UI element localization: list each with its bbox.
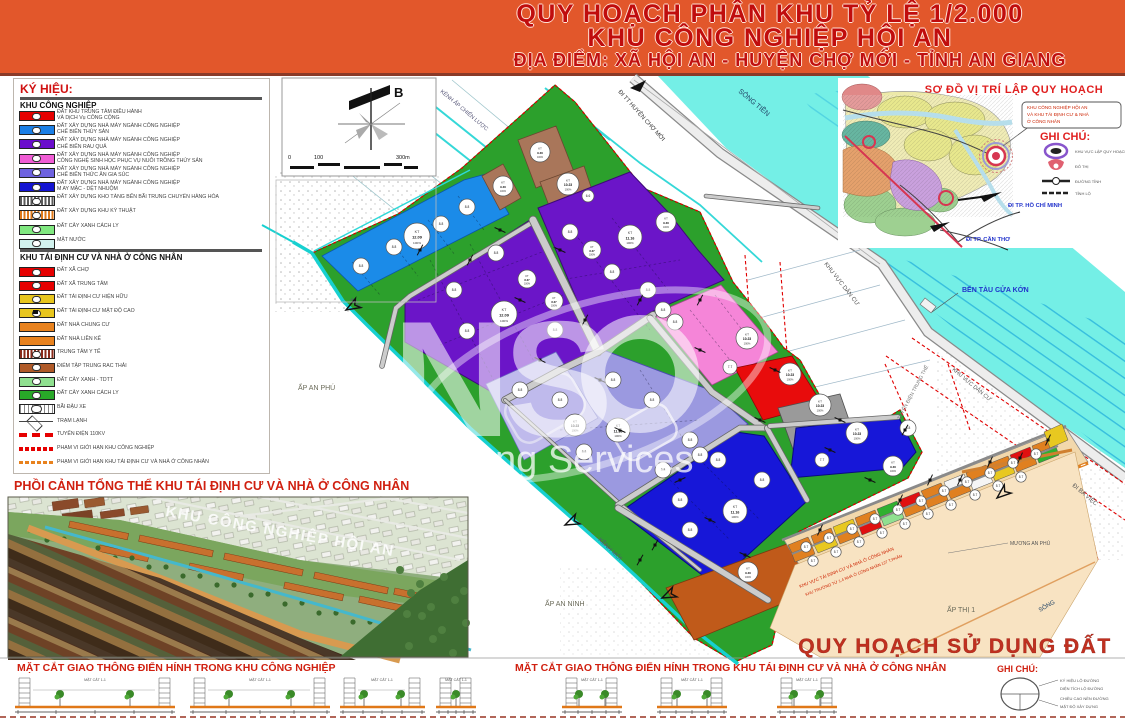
svg-text:ĐI TP. HỒ CHÍ MINH: ĐI TP. HỒ CHÍ MINH xyxy=(1008,201,1062,209)
svg-text:10.23: 10.23 xyxy=(743,337,751,341)
svg-text:100%: 100% xyxy=(500,190,507,193)
svg-text:KT: KT xyxy=(891,461,895,465)
svg-text:100%: 100% xyxy=(537,156,544,159)
svg-text:100%: 100% xyxy=(787,378,794,382)
svg-text:CHIỀU CAO NỀN ĐƯỜNG: CHIỀU CAO NỀN ĐƯỜNG xyxy=(1060,696,1109,701)
svg-text:7.7: 7.7 xyxy=(820,458,825,462)
svg-text:8.8: 8.8 xyxy=(392,245,397,249)
svg-text:8.8: 8.8 xyxy=(494,251,499,255)
svg-text:5.7: 5.7 xyxy=(942,489,947,493)
svg-text:KHU VỰC LẬP QUY HOẠCH: KHU VỰC LẬP QUY HOẠCH xyxy=(1075,149,1125,154)
svg-text:KT: KT xyxy=(745,332,749,336)
svg-text:100%: 100% xyxy=(413,241,421,245)
svg-text:8.37: 8.37 xyxy=(589,249,595,253)
svg-text:KT: KT xyxy=(788,368,792,372)
svg-text:SƠ ĐỒ VỊ TRÍ LẬP QUY HOẠCH: SƠ ĐỒ VỊ TRÍ LẬP QUY HOẠCH xyxy=(925,83,1103,96)
svg-text:8.8: 8.8 xyxy=(760,478,765,482)
svg-text:100%: 100% xyxy=(890,470,897,473)
svg-text:5.7: 5.7 xyxy=(1011,461,1016,465)
svg-text:KT: KT xyxy=(501,181,505,185)
svg-text:MẶT CẮT 1-1: MẶT CẮT 1-1 xyxy=(796,677,818,682)
svg-text:KT: KT xyxy=(628,231,632,235)
svg-text:12.09: 12.09 xyxy=(412,235,423,240)
svg-text:KT: KT xyxy=(733,505,737,509)
svg-text:VÀ KHU TÁI ĐỊNH CƯ & NHÀ: VÀ KHU TÁI ĐỊNH CƯ & NHÀ xyxy=(1027,111,1090,117)
svg-text:8.8: 8.8 xyxy=(673,320,678,324)
svg-text:11.16: 11.16 xyxy=(731,510,740,514)
svg-text:MẶT CẮT 1-1: MẶT CẮT 1-1 xyxy=(445,677,467,682)
svg-text:ĐÔ THỊ: ĐÔ THỊ xyxy=(1075,164,1088,169)
svg-text:8.8: 8.8 xyxy=(688,528,693,532)
svg-text:5.7: 5.7 xyxy=(857,540,862,544)
svg-text:10.23: 10.23 xyxy=(816,404,824,408)
svg-text:9.30: 9.30 xyxy=(537,151,543,155)
svg-text:10.23: 10.23 xyxy=(564,183,572,187)
svg-text:MẶT CẮT 1-1: MẶT CẮT 1-1 xyxy=(371,677,393,682)
svg-text:5.7: 5.7 xyxy=(996,484,1001,488)
svg-text:5.7: 5.7 xyxy=(949,503,954,507)
svg-text:MẶT ĐỘ XÂY DỰNG: MẶT ĐỘ XÂY DỰNG xyxy=(1060,704,1098,709)
svg-text:5.7: 5.7 xyxy=(1034,452,1039,456)
svg-text:300m: 300m xyxy=(396,155,410,161)
svg-text:5.7: 5.7 xyxy=(965,480,970,484)
svg-text:KÝ HIỆU LỘ ĐƯỜNG: KÝ HIỆU LỘ ĐƯỜNG xyxy=(1060,678,1099,683)
svg-text:100%: 100% xyxy=(589,253,596,256)
svg-text:0: 0 xyxy=(288,155,291,161)
svg-text:MẶT CẮT GIAO THÔNG ĐIỂN HÍNH T: MẶT CẮT GIAO THÔNG ĐIỂN HÍNH TRONG KHU C… xyxy=(17,661,336,674)
svg-text:ẤP AN PHÚ: ẤP AN PHÚ xyxy=(298,382,335,392)
svg-text:8.8: 8.8 xyxy=(661,308,666,312)
svg-text:8.8: 8.8 xyxy=(650,398,655,402)
svg-text:5.7: 5.7 xyxy=(827,536,832,540)
svg-text:B: B xyxy=(394,85,403,100)
svg-text:8.8: 8.8 xyxy=(716,458,721,462)
svg-text:9.30: 9.30 xyxy=(890,465,896,469)
svg-text:5.7: 5.7 xyxy=(1019,475,1024,479)
svg-text:GHI CHÚ:: GHI CHÚ: xyxy=(997,663,1038,674)
svg-text:MẶT CẮT 1-1: MẶT CẮT 1-1 xyxy=(249,677,271,682)
svg-text:KÊNH ẤP CHIẾN LƯỢC: KÊNH ẤP CHIẾN LƯỢC xyxy=(439,87,491,132)
svg-text:8.8: 8.8 xyxy=(439,222,444,226)
svg-text:100%: 100% xyxy=(744,342,751,346)
svg-text:Ở CÔNG NHÂN: Ở CÔNG NHÂN xyxy=(1027,118,1060,124)
svg-text:100%: 100% xyxy=(663,226,670,229)
svg-text:8.8: 8.8 xyxy=(698,453,703,457)
svg-text:5.7: 5.7 xyxy=(973,493,978,497)
svg-text:5.7: 5.7 xyxy=(873,517,878,521)
svg-text:5.7: 5.7 xyxy=(988,471,993,475)
svg-text:8.8: 8.8 xyxy=(610,270,615,274)
svg-text:KT: KT xyxy=(590,245,594,249)
svg-text:5.7: 5.7 xyxy=(919,499,924,503)
svg-text:TUYẾN ĐIỆN TRUNG THẾ: TUYẾN ĐIỆN TRUNG THẾ xyxy=(895,363,931,421)
svg-text:9.30: 9.30 xyxy=(500,185,506,189)
svg-text:5.7: 5.7 xyxy=(926,512,931,516)
svg-text:MẶT CẮT 1-1: MẶT CẮT 1-1 xyxy=(84,677,106,682)
svg-text:8.8: 8.8 xyxy=(568,230,573,234)
svg-text:11.16: 11.16 xyxy=(626,236,635,240)
svg-text:100%: 100% xyxy=(745,576,752,579)
svg-text:100%: 100% xyxy=(817,409,824,413)
svg-text:KT: KT xyxy=(525,274,529,278)
svg-text:7.7: 7.7 xyxy=(728,365,733,369)
svg-text:KT: KT xyxy=(566,178,570,182)
svg-text:8.8: 8.8 xyxy=(611,378,616,382)
svg-text:9.30: 9.30 xyxy=(663,221,669,225)
svg-text:10.23: 10.23 xyxy=(853,432,861,436)
svg-text:10.23: 10.23 xyxy=(786,373,794,377)
svg-text:MẶT CẮT 1-1: MẶT CẮT 1-1 xyxy=(581,677,603,682)
svg-text:ĐƯỜNG TỈNH: ĐƯỜNG TỈNH xyxy=(1075,179,1101,184)
svg-text:100: 100 xyxy=(314,155,323,161)
svg-text:5.7: 5.7 xyxy=(811,559,816,563)
svg-text:KHU VỰC DÂN CƯ: KHU VỰC DÂN CƯ xyxy=(822,261,860,307)
svg-text:100%: 100% xyxy=(614,434,622,438)
svg-text:5.7: 5.7 xyxy=(834,550,839,554)
svg-text:5.7: 5.7 xyxy=(850,527,855,531)
svg-text:KT: KT xyxy=(415,230,420,234)
svg-text:PHỒI CẢNH TỔNG THỂ KHU TÁI ĐỊN: PHỒI CẢNH TỔNG THỂ KHU TÁI ĐỊNH CƯ VÀ NH… xyxy=(14,478,409,493)
svg-text:DIỆN TÍCH LỘ ĐƯỜNG: DIỆN TÍCH LỘ ĐƯỜNG xyxy=(1060,686,1103,691)
svg-text:5.7: 5.7 xyxy=(903,522,908,526)
svg-text:100%: 100% xyxy=(626,241,634,245)
svg-text:GHI CHÚ:: GHI CHÚ: xyxy=(1040,130,1090,143)
svg-text:ĐI TP. CẦN THƠ: ĐI TP. CẦN THƠ xyxy=(966,236,1010,243)
svg-text:ng Services: ng Services xyxy=(495,439,694,481)
svg-text:MẶT CẮT GIAO THÔNG ĐIỂN HÍNH T: MẶT CẮT GIAO THÔNG ĐIỂN HÍNH TRONG KHU T… xyxy=(515,661,946,674)
svg-text:100%: 100% xyxy=(854,437,861,441)
svg-text:5.7: 5.7 xyxy=(896,508,901,512)
svg-text:9.30: 9.30 xyxy=(745,571,751,575)
svg-text:QUY HOẠCH SỬ DỤNG ĐẤT: QUY HOẠCH SỬ DỤNG ĐẤT xyxy=(798,634,1111,658)
svg-text:MẶT CẮT 1-1: MẶT CẮT 1-1 xyxy=(681,677,703,682)
svg-text:8.37: 8.37 xyxy=(524,278,530,282)
svg-text:8.8: 8.8 xyxy=(678,498,683,502)
svg-text:5.7: 5.7 xyxy=(804,545,809,549)
svg-text:100%: 100% xyxy=(565,188,572,192)
svg-text:100%: 100% xyxy=(524,282,531,285)
svg-text:MƯƠNG AN PHÚ: MƯƠNG AN PHÚ xyxy=(1010,540,1051,547)
svg-text:KT: KT xyxy=(818,399,822,403)
svg-text:5.7: 5.7 xyxy=(880,531,885,535)
svg-text:8.8: 8.8 xyxy=(359,264,364,268)
svg-text:100%: 100% xyxy=(731,515,739,519)
svg-text:KT: KT xyxy=(538,147,542,151)
svg-text:KHU CÔNG NGHIỆP HỘI AN: KHU CÔNG NGHIỆP HỘI AN xyxy=(1027,103,1087,110)
svg-text:TỈNH LỘ: TỈNH LỘ xyxy=(1075,191,1091,196)
svg-text:6.6: 6.6 xyxy=(586,194,591,198)
svg-text:KT: KT xyxy=(855,427,859,431)
svg-text:8.8: 8.8 xyxy=(465,205,470,209)
svg-text:KT: KT xyxy=(746,567,750,571)
svg-text:KT: KT xyxy=(664,217,668,221)
